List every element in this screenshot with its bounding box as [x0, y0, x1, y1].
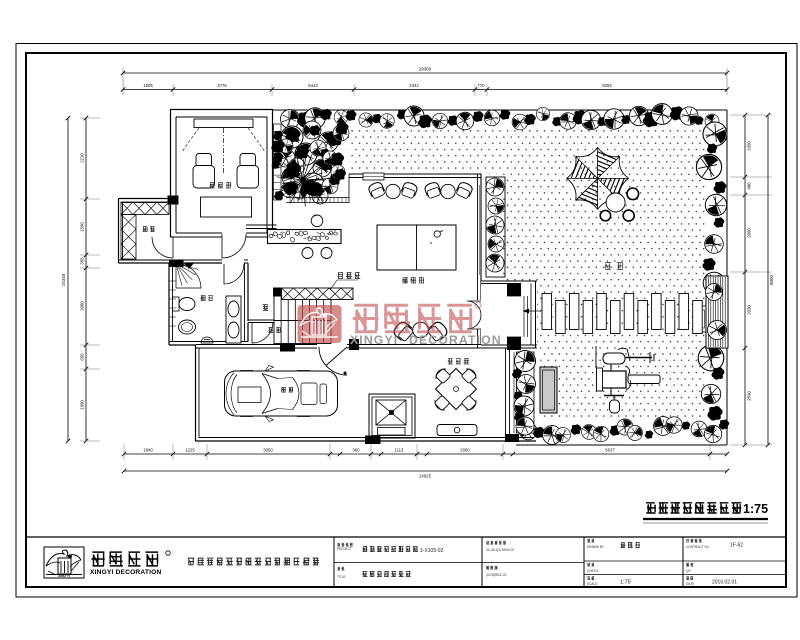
svg-text:(023)8531-02: (023)8531-02: [486, 573, 506, 577]
svg-text:1650: 1650: [747, 141, 752, 151]
svg-text:14925: 14925: [419, 474, 432, 479]
svg-text:770: 770: [477, 83, 485, 88]
svg-text:1505: 1505: [143, 83, 153, 88]
svg-text:3050: 3050: [263, 448, 273, 453]
svg-text:PROJECT: PROJECT: [337, 547, 352, 551]
svg-text:2590: 2590: [747, 391, 752, 401]
svg-text:1F-62: 1F-62: [730, 543, 743, 549]
svg-text:1590: 1590: [80, 222, 85, 232]
svg-text:1:75: 1:75: [620, 580, 631, 586]
svg-text:29360: 29360: [419, 67, 432, 72]
svg-text:350: 350: [80, 257, 85, 265]
svg-text:TITLE: TITLE: [337, 575, 346, 579]
svg-text:2060: 2060: [747, 228, 752, 238]
svg-text:4342: 4342: [409, 83, 419, 88]
svg-text:1840: 1840: [143, 448, 153, 453]
svg-text:650: 650: [80, 353, 85, 361]
svg-text:5443: 5443: [308, 83, 318, 88]
svg-text:2080: 2080: [80, 301, 85, 311]
svg-text:2210: 2210: [80, 153, 85, 163]
svg-text:2016.02.01: 2016.02.01: [712, 580, 737, 586]
svg-text:9292: 9292: [602, 83, 612, 88]
svg-text:360: 360: [352, 448, 360, 453]
svg-text:DATE: DATE: [686, 582, 694, 586]
svg-text:5637: 5637: [605, 448, 615, 453]
svg-text:XINGYI: XINGYI: [350, 333, 398, 347]
svg-text:QS: QS: [686, 569, 691, 573]
svg-text:2060: 2060: [460, 448, 470, 453]
svg-text:01-28-QS-5901-02: 01-28-QS-5901-02: [486, 548, 514, 552]
svg-text:1-X105-02: 1-X105-02: [420, 548, 444, 554]
svg-text:1:75: 1:75: [743, 502, 768, 516]
svg-text:8800: 8800: [769, 274, 774, 285]
svg-text:DECORATION: DECORATION: [409, 333, 502, 347]
svg-text:SCALE: SCALE: [587, 582, 597, 586]
svg-text:XING·YI: XING·YI: [58, 574, 70, 578]
svg-text:DRAWN BY: DRAWN BY: [587, 545, 605, 549]
svg-text:2030: 2030: [747, 305, 752, 315]
svg-text:XINGYI DECORATION: XINGYI DECORATION: [90, 569, 161, 576]
svg-text:CONTRACT No.: CONTRACT No.: [686, 545, 710, 549]
svg-text:1960: 1960: [80, 400, 85, 410]
svg-text:3776: 3776: [217, 83, 227, 88]
svg-text:480: 480: [747, 182, 752, 190]
svg-text:1225: 1225: [185, 448, 195, 453]
svg-text:15340: 15340: [61, 273, 66, 286]
svg-text:CHECK: CHECK: [587, 569, 599, 573]
svg-text:1113: 1113: [395, 448, 405, 453]
